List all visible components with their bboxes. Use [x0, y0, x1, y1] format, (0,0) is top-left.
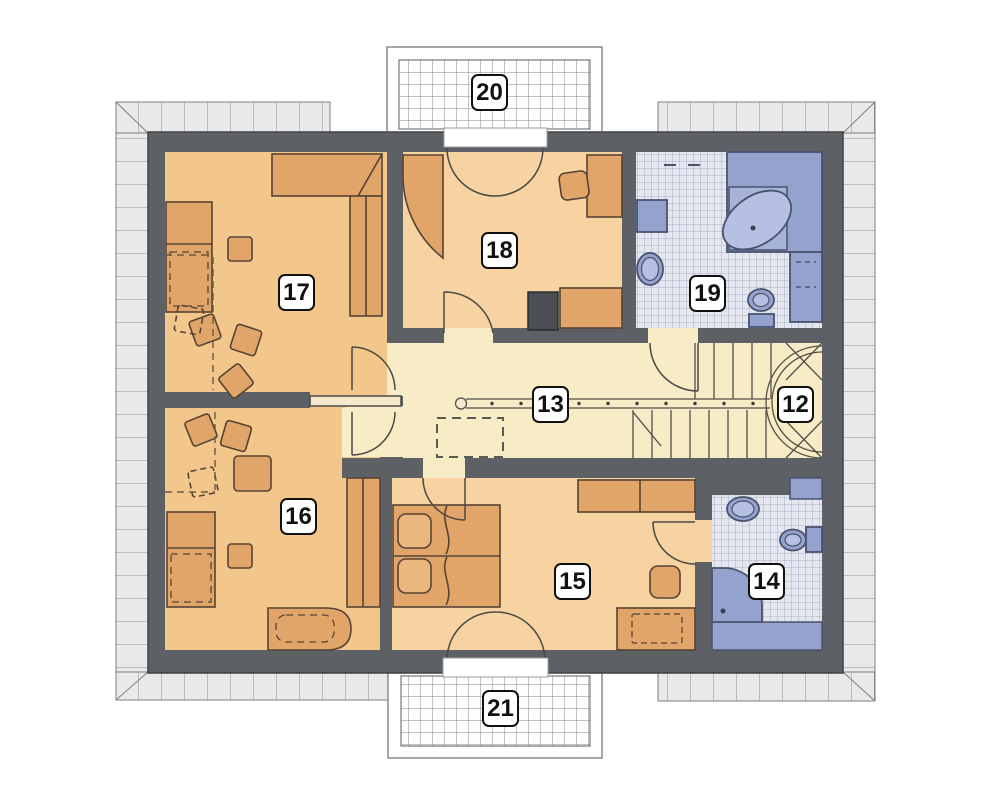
eave-bottom-left [116, 672, 388, 700]
chair-icon [558, 170, 589, 201]
wall-patch [342, 458, 403, 478]
door-opening-14 [695, 520, 712, 562]
eave-right [843, 102, 875, 701]
room-label-16: 16 [280, 498, 317, 535]
sink-14-basin [732, 501, 754, 517]
side-table-icon [228, 237, 252, 261]
pillow-icon [398, 514, 431, 548]
bed-icon [166, 202, 212, 312]
room-label-15: 15 [554, 563, 591, 600]
room-label-21: 21 [482, 690, 519, 727]
door-opening-19 [648, 328, 698, 343]
table-icon [234, 456, 271, 491]
railing-newel-post [456, 398, 467, 409]
bed-icon [167, 512, 215, 607]
dresser-icon [560, 288, 622, 328]
toilet-19-bowl [753, 294, 769, 307]
floor-plan-drawing [0, 0, 1000, 806]
floor-plan: 12 13 14 15 16 17 18 19 20 21 [0, 0, 1000, 806]
room-label-13: 13 [532, 386, 569, 423]
eave-bottom-right [658, 672, 875, 701]
room-label-12: 12 [777, 386, 814, 423]
toilet-14-tank [806, 527, 822, 552]
threshold-balcony-21 [443, 658, 548, 677]
room-label-17: 17 [278, 274, 315, 311]
desk-icon [587, 155, 622, 217]
chimney-block [528, 292, 558, 330]
sofa-icon [268, 608, 351, 650]
bath-cabinet [637, 200, 667, 232]
toilet-19-tank [749, 314, 774, 327]
wardrobe-icon [578, 480, 695, 512]
threshold-balcony-20 [444, 128, 547, 147]
side-table-icon [228, 544, 252, 568]
door-opening-15 [423, 458, 465, 478]
toilet-14-bowl [785, 534, 801, 546]
room-label-20: 20 [471, 74, 508, 111]
eave-top-right [658, 102, 875, 133]
door-opening-18 [444, 328, 493, 343]
room-label-19: 19 [689, 275, 726, 312]
shower-drain [721, 609, 726, 614]
bathtub-drain [751, 226, 756, 231]
eave-left [116, 102, 148, 698]
desk-icon [272, 154, 382, 196]
sink-19-basin [642, 258, 659, 281]
bath-14-shelf [790, 478, 822, 499]
room-label-14: 14 [748, 563, 785, 600]
thin-partition-wall [310, 396, 401, 406]
eave-top-left [116, 102, 330, 133]
room-label-18: 18 [481, 232, 518, 269]
stool-icon [650, 566, 680, 598]
bath-14-mat [712, 622, 822, 650]
pillow-icon [398, 559, 431, 593]
